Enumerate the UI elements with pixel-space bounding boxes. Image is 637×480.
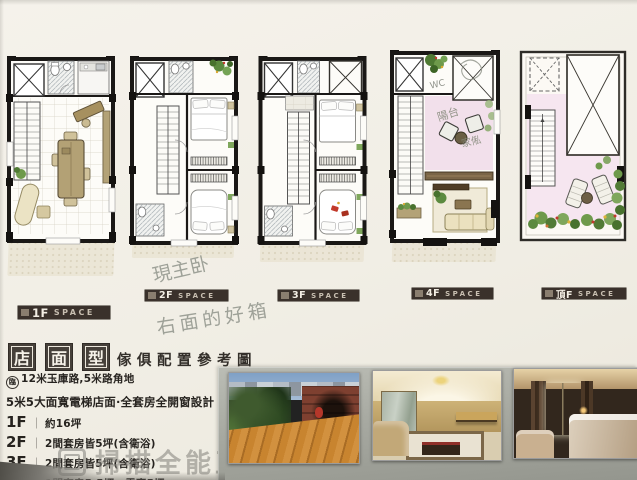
roof-terrace-night-photo (228, 372, 360, 464)
elevator-overrun (530, 58, 559, 91)
window (300, 240, 326, 246)
floor-plan-2f (128, 56, 240, 248)
label-inset (545, 290, 553, 297)
photo-coffee-table (422, 442, 460, 454)
photo-chandelier (432, 375, 450, 386)
elevator (265, 63, 293, 97)
space-text: SPACE (178, 292, 215, 300)
floor-code: 2F (159, 290, 173, 301)
living-room-photo (372, 370, 502, 461)
staircase (157, 106, 179, 194)
elevator (14, 64, 44, 96)
window (7, 142, 13, 166)
scanned-brochure-page: 1F SPACE 2F SPACE 3F SPACE 4F SPACE 頂F S… (0, 0, 637, 480)
window (46, 238, 80, 244)
staircase (398, 96, 423, 194)
photo-sofa (373, 421, 409, 457)
space-text: SPACE (578, 290, 615, 298)
desk-chair (82, 119, 90, 127)
bathroom-lower (136, 204, 164, 236)
floor-label-3f: 3F SPACE (278, 290, 359, 301)
photo-bed (569, 414, 637, 459)
bedroom-photo (513, 368, 637, 459)
void-shaft (330, 61, 362, 94)
elevator (396, 58, 423, 91)
kitchen (78, 61, 109, 94)
window (361, 196, 367, 220)
separator: ｜ (31, 435, 42, 451)
photo-daybed (516, 430, 553, 458)
floor-label-4f: 4F SPACE (412, 288, 493, 299)
space-text: SPACE (54, 308, 95, 317)
elevator (136, 63, 164, 97)
label-inset (21, 309, 29, 316)
floor-plan-1f-drawing (6, 56, 116, 246)
floor-code: 2F (6, 433, 31, 451)
floor-code: 1F (6, 413, 31, 431)
bathroom (169, 61, 193, 93)
staircase (530, 110, 555, 186)
window (109, 188, 115, 212)
floor-plan-roof (516, 48, 630, 246)
staircase (288, 112, 310, 204)
floor-plan-4f (388, 50, 502, 246)
floor-code: 3F (292, 290, 306, 301)
floor-label-2f: 2F SPACE (145, 290, 228, 301)
title-block: 店 面 型 (8, 343, 110, 371)
void-shaft (453, 56, 493, 100)
road-line: 臨12米玉庫路,5米路角地 (6, 371, 224, 389)
paper-edge-shadow-left (0, 0, 4, 480)
window (494, 110, 500, 134)
living-area (433, 184, 494, 232)
void-shaft (567, 55, 619, 155)
floor-detail-row: 1F ｜ 約16坪 (6, 413, 224, 433)
floor-code: 4F (426, 288, 440, 299)
window (232, 116, 238, 140)
floor-label-1f: 1F SPACE (18, 306, 110, 319)
space-text: SPACE (311, 292, 348, 300)
window (232, 196, 238, 220)
window (361, 116, 367, 140)
photo-shelf (456, 412, 497, 422)
label-inset (281, 292, 289, 299)
floor-label-roof: 頂F SPACE (542, 288, 626, 299)
photo-red-pot (315, 407, 323, 418)
floor-plan-roof-drawing (516, 48, 630, 246)
circled-character: 臨 (6, 376, 19, 389)
bathroom (48, 61, 74, 94)
title-box-char: 面 (45, 343, 73, 371)
separator: ｜ (31, 415, 42, 431)
window (171, 240, 197, 246)
floor-plan-1f (6, 56, 116, 246)
side-counter (103, 111, 110, 183)
ottoman (37, 206, 50, 218)
space-text: SPACE (445, 290, 482, 298)
design-line: 5米5大面寬電梯店面·全套房全開窗設計 (6, 394, 224, 410)
photo-panel (218, 367, 637, 480)
conference-table (52, 132, 90, 206)
floor-code: 1F (32, 306, 49, 320)
floor-plan-3f (256, 56, 369, 248)
floor-code: 頂F (556, 287, 573, 301)
paper-edge-shadow-top (0, 0, 637, 5)
label-inset (148, 292, 156, 299)
floor-desc: 約16坪 (45, 416, 81, 431)
bathroom-lower (265, 206, 293, 236)
floor-plan-4f-drawing (388, 50, 502, 246)
title-box-char: 型 (82, 343, 110, 371)
title-box-char: 店 (8, 343, 36, 371)
road-text: 12米玉庫路,5米路角地 (21, 373, 135, 385)
handwritten-note-right-side: 右面的好箱 (155, 295, 273, 340)
floor-plan-3f-drawing (256, 56, 369, 248)
bathroom (298, 61, 320, 93)
label-inset (415, 290, 423, 297)
floor-plan-2f-drawing (128, 56, 240, 248)
